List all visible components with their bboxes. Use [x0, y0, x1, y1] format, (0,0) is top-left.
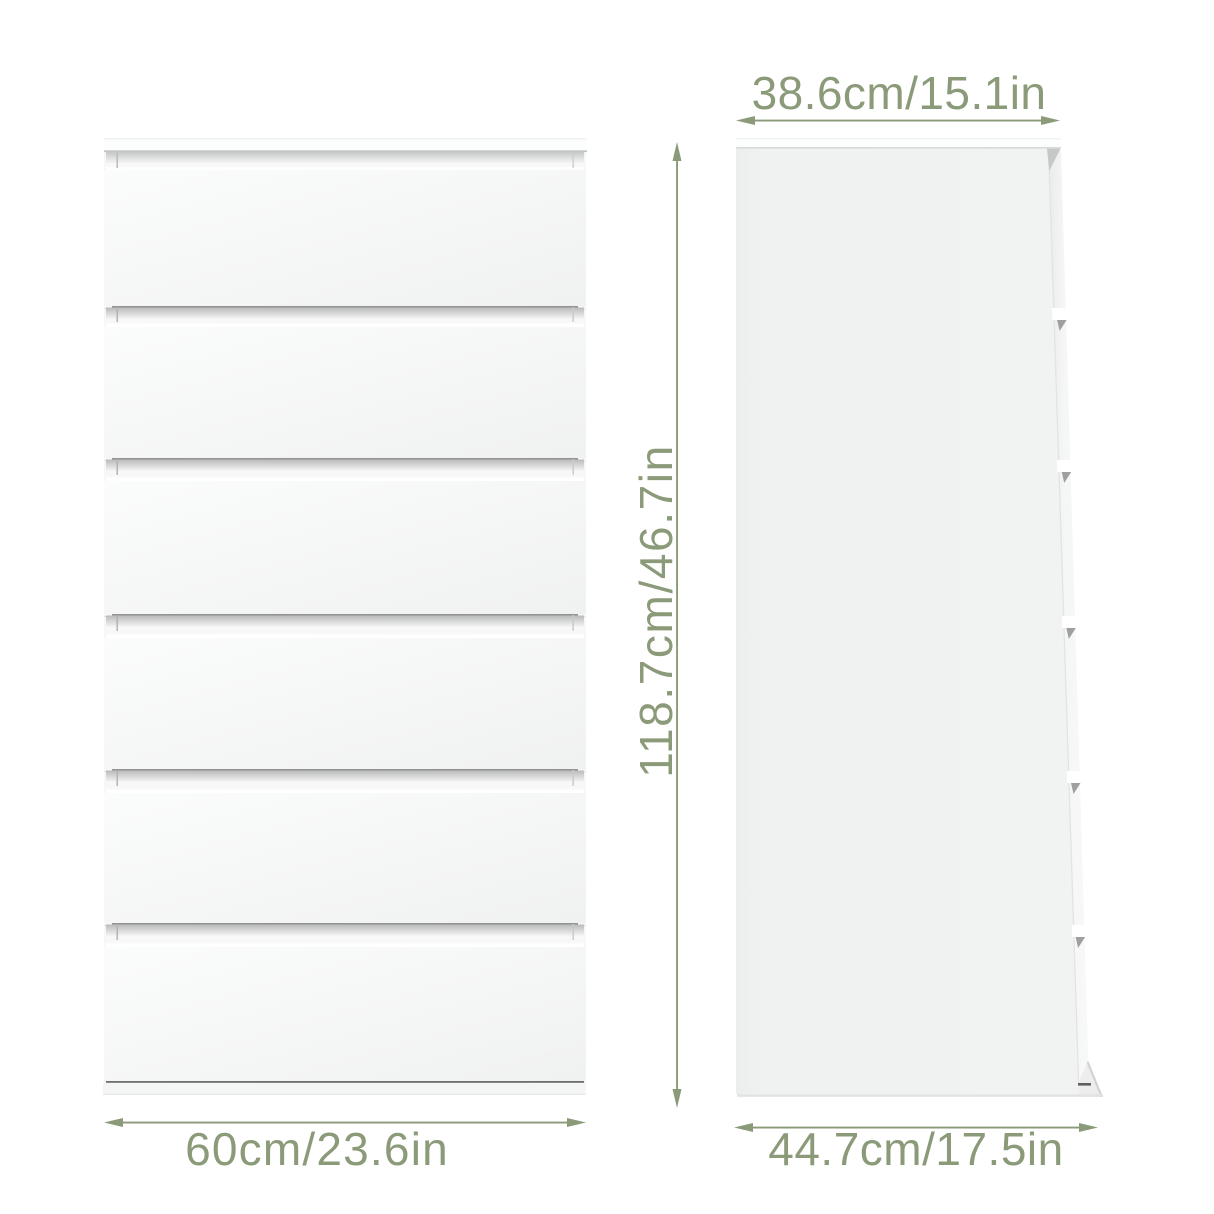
- svg-text:118.7cm/46.7in: 118.7cm/46.7in: [630, 444, 682, 778]
- svg-text:38.6cm/15.1in: 38.6cm/15.1in: [752, 67, 1047, 119]
- svg-text:44.7cm/17.5in: 44.7cm/17.5in: [768, 1123, 1063, 1175]
- svg-text:60cm/23.6in: 60cm/23.6in: [185, 1123, 449, 1175]
